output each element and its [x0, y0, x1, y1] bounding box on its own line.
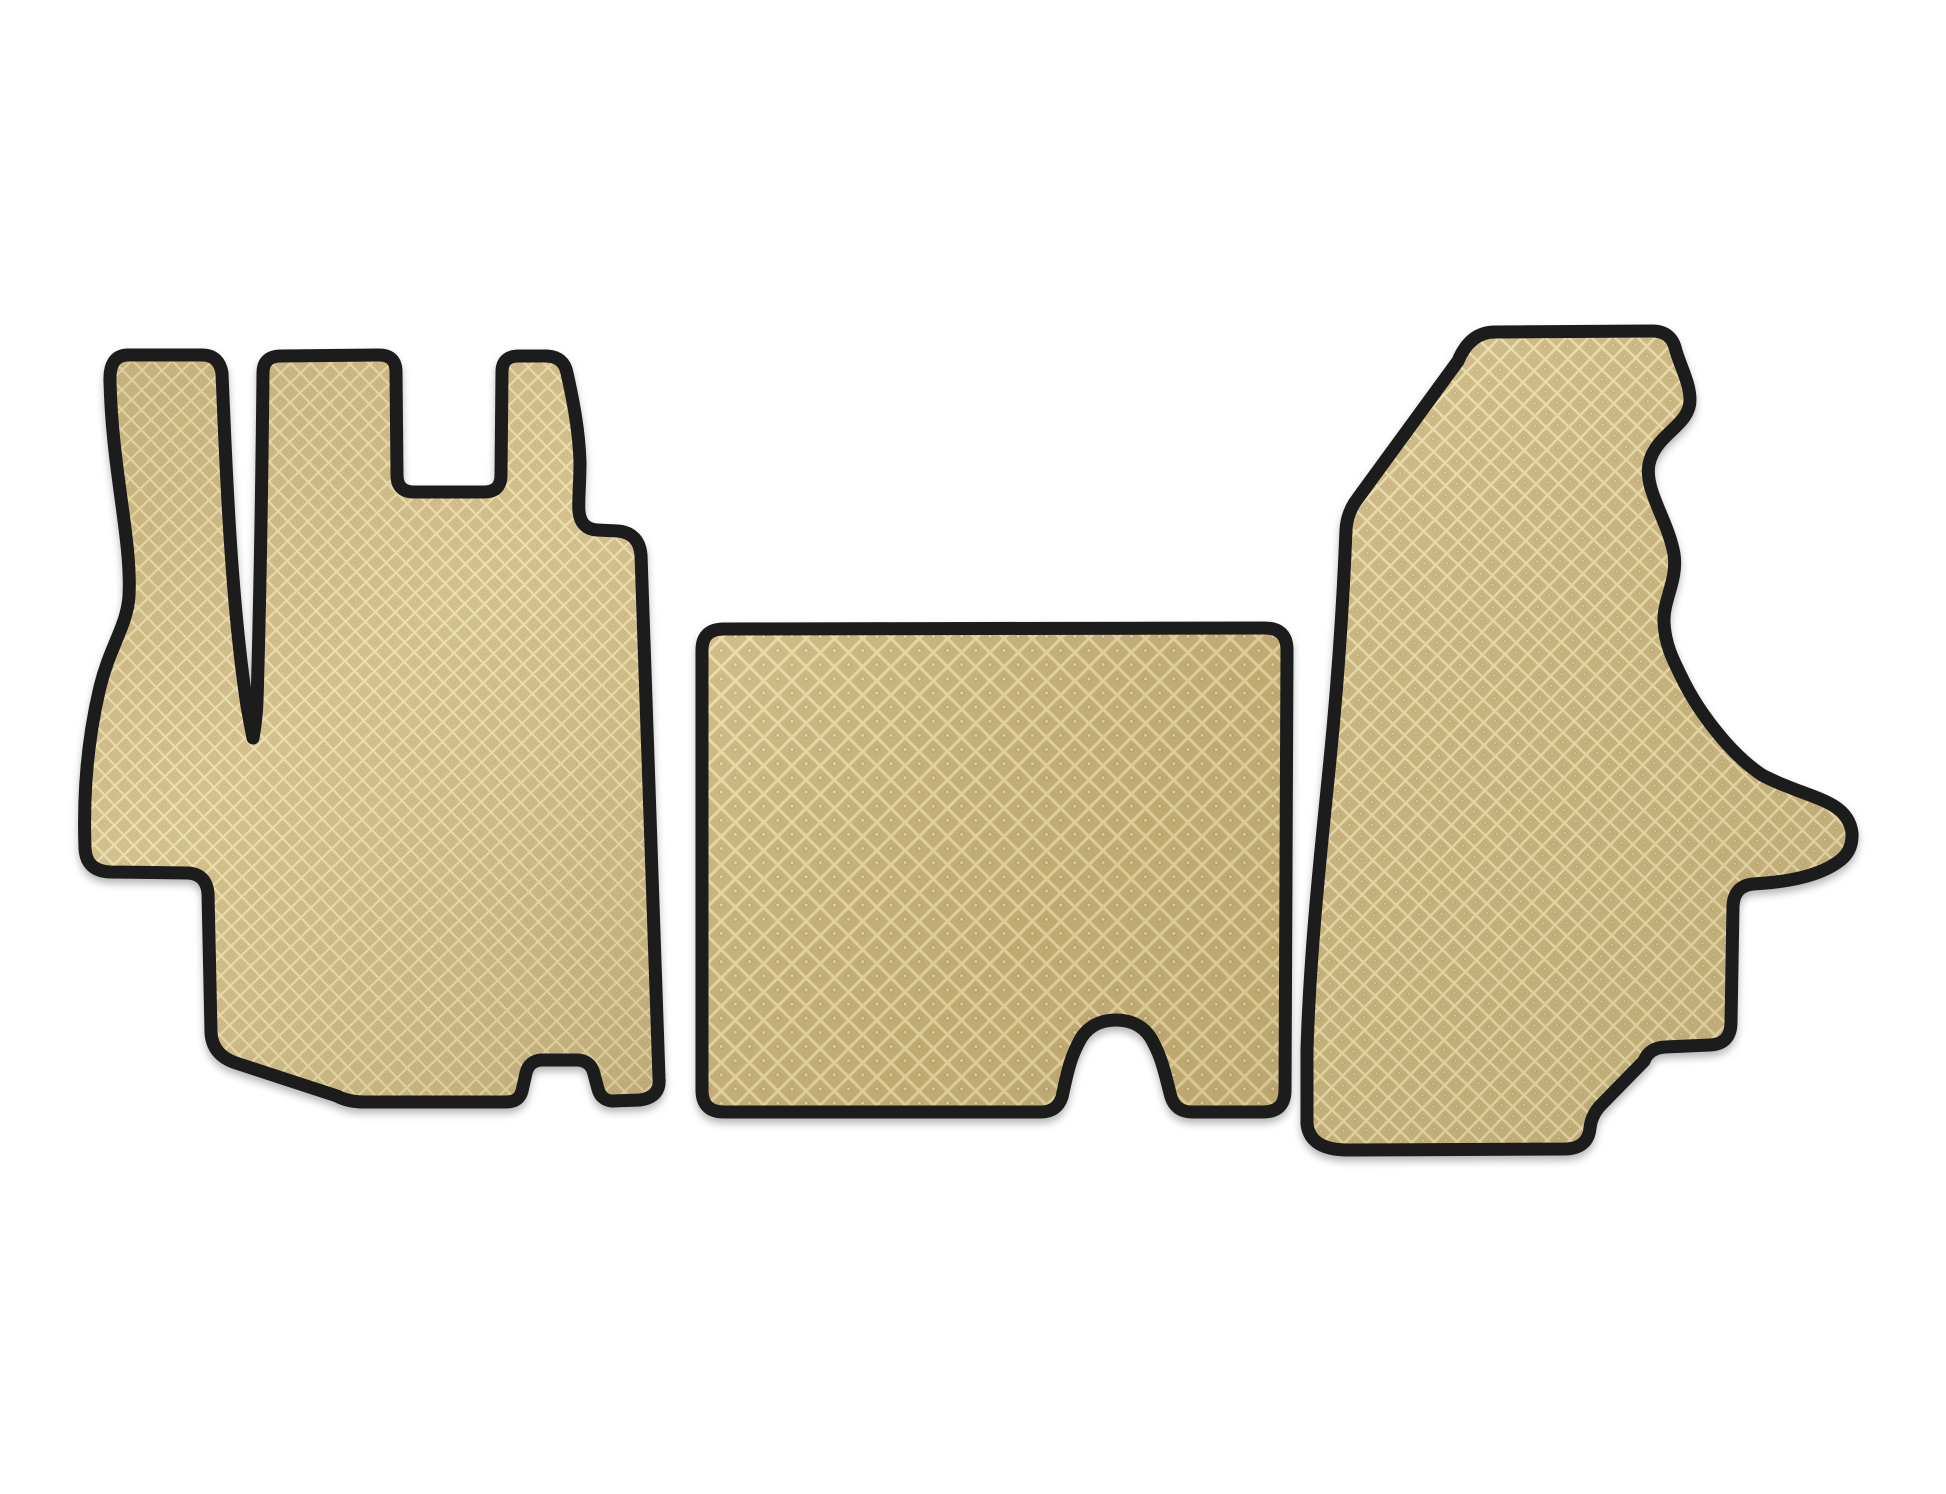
center-mat-sheen — [702, 628, 1287, 1112]
center-tunnel-mat — [702, 628, 1287, 1112]
floor-mat-set-illustration — [0, 0, 1946, 1494]
product-photo-canvas — [0, 0, 1946, 1494]
